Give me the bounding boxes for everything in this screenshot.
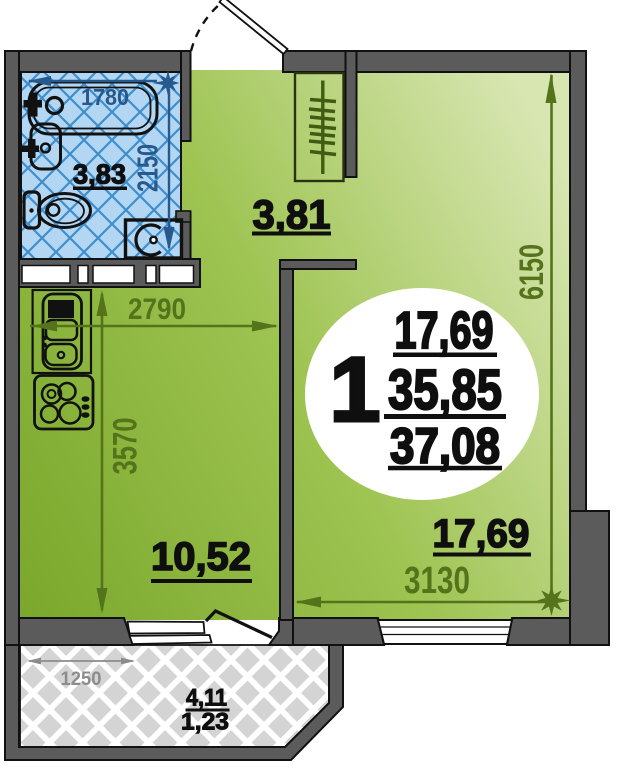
svg-text:2790: 2790 [128,293,186,326]
svg-text:4,11: 4,11 [186,685,227,712]
svg-text:3,83: 3,83 [73,159,126,190]
svg-text:17,69: 17,69 [433,512,530,556]
svg-text:3570: 3570 [107,418,145,475]
svg-text:35,85: 35,85 [388,358,502,422]
svg-text:1: 1 [329,339,380,441]
svg-text:37,08: 37,08 [390,418,500,474]
svg-text:10,52: 10,52 [151,535,251,579]
svg-text:17,69: 17,69 [395,302,494,360]
svg-text:1780: 1780 [81,84,129,110]
svg-text:1,23: 1,23 [181,709,229,736]
svg-text:1250: 1250 [61,669,102,690]
svg-text:6150: 6150 [513,244,551,300]
svg-text:2150: 2150 [133,144,165,192]
svg-text:3130: 3130 [404,560,470,602]
svg-text:3,81: 3,81 [253,192,331,238]
